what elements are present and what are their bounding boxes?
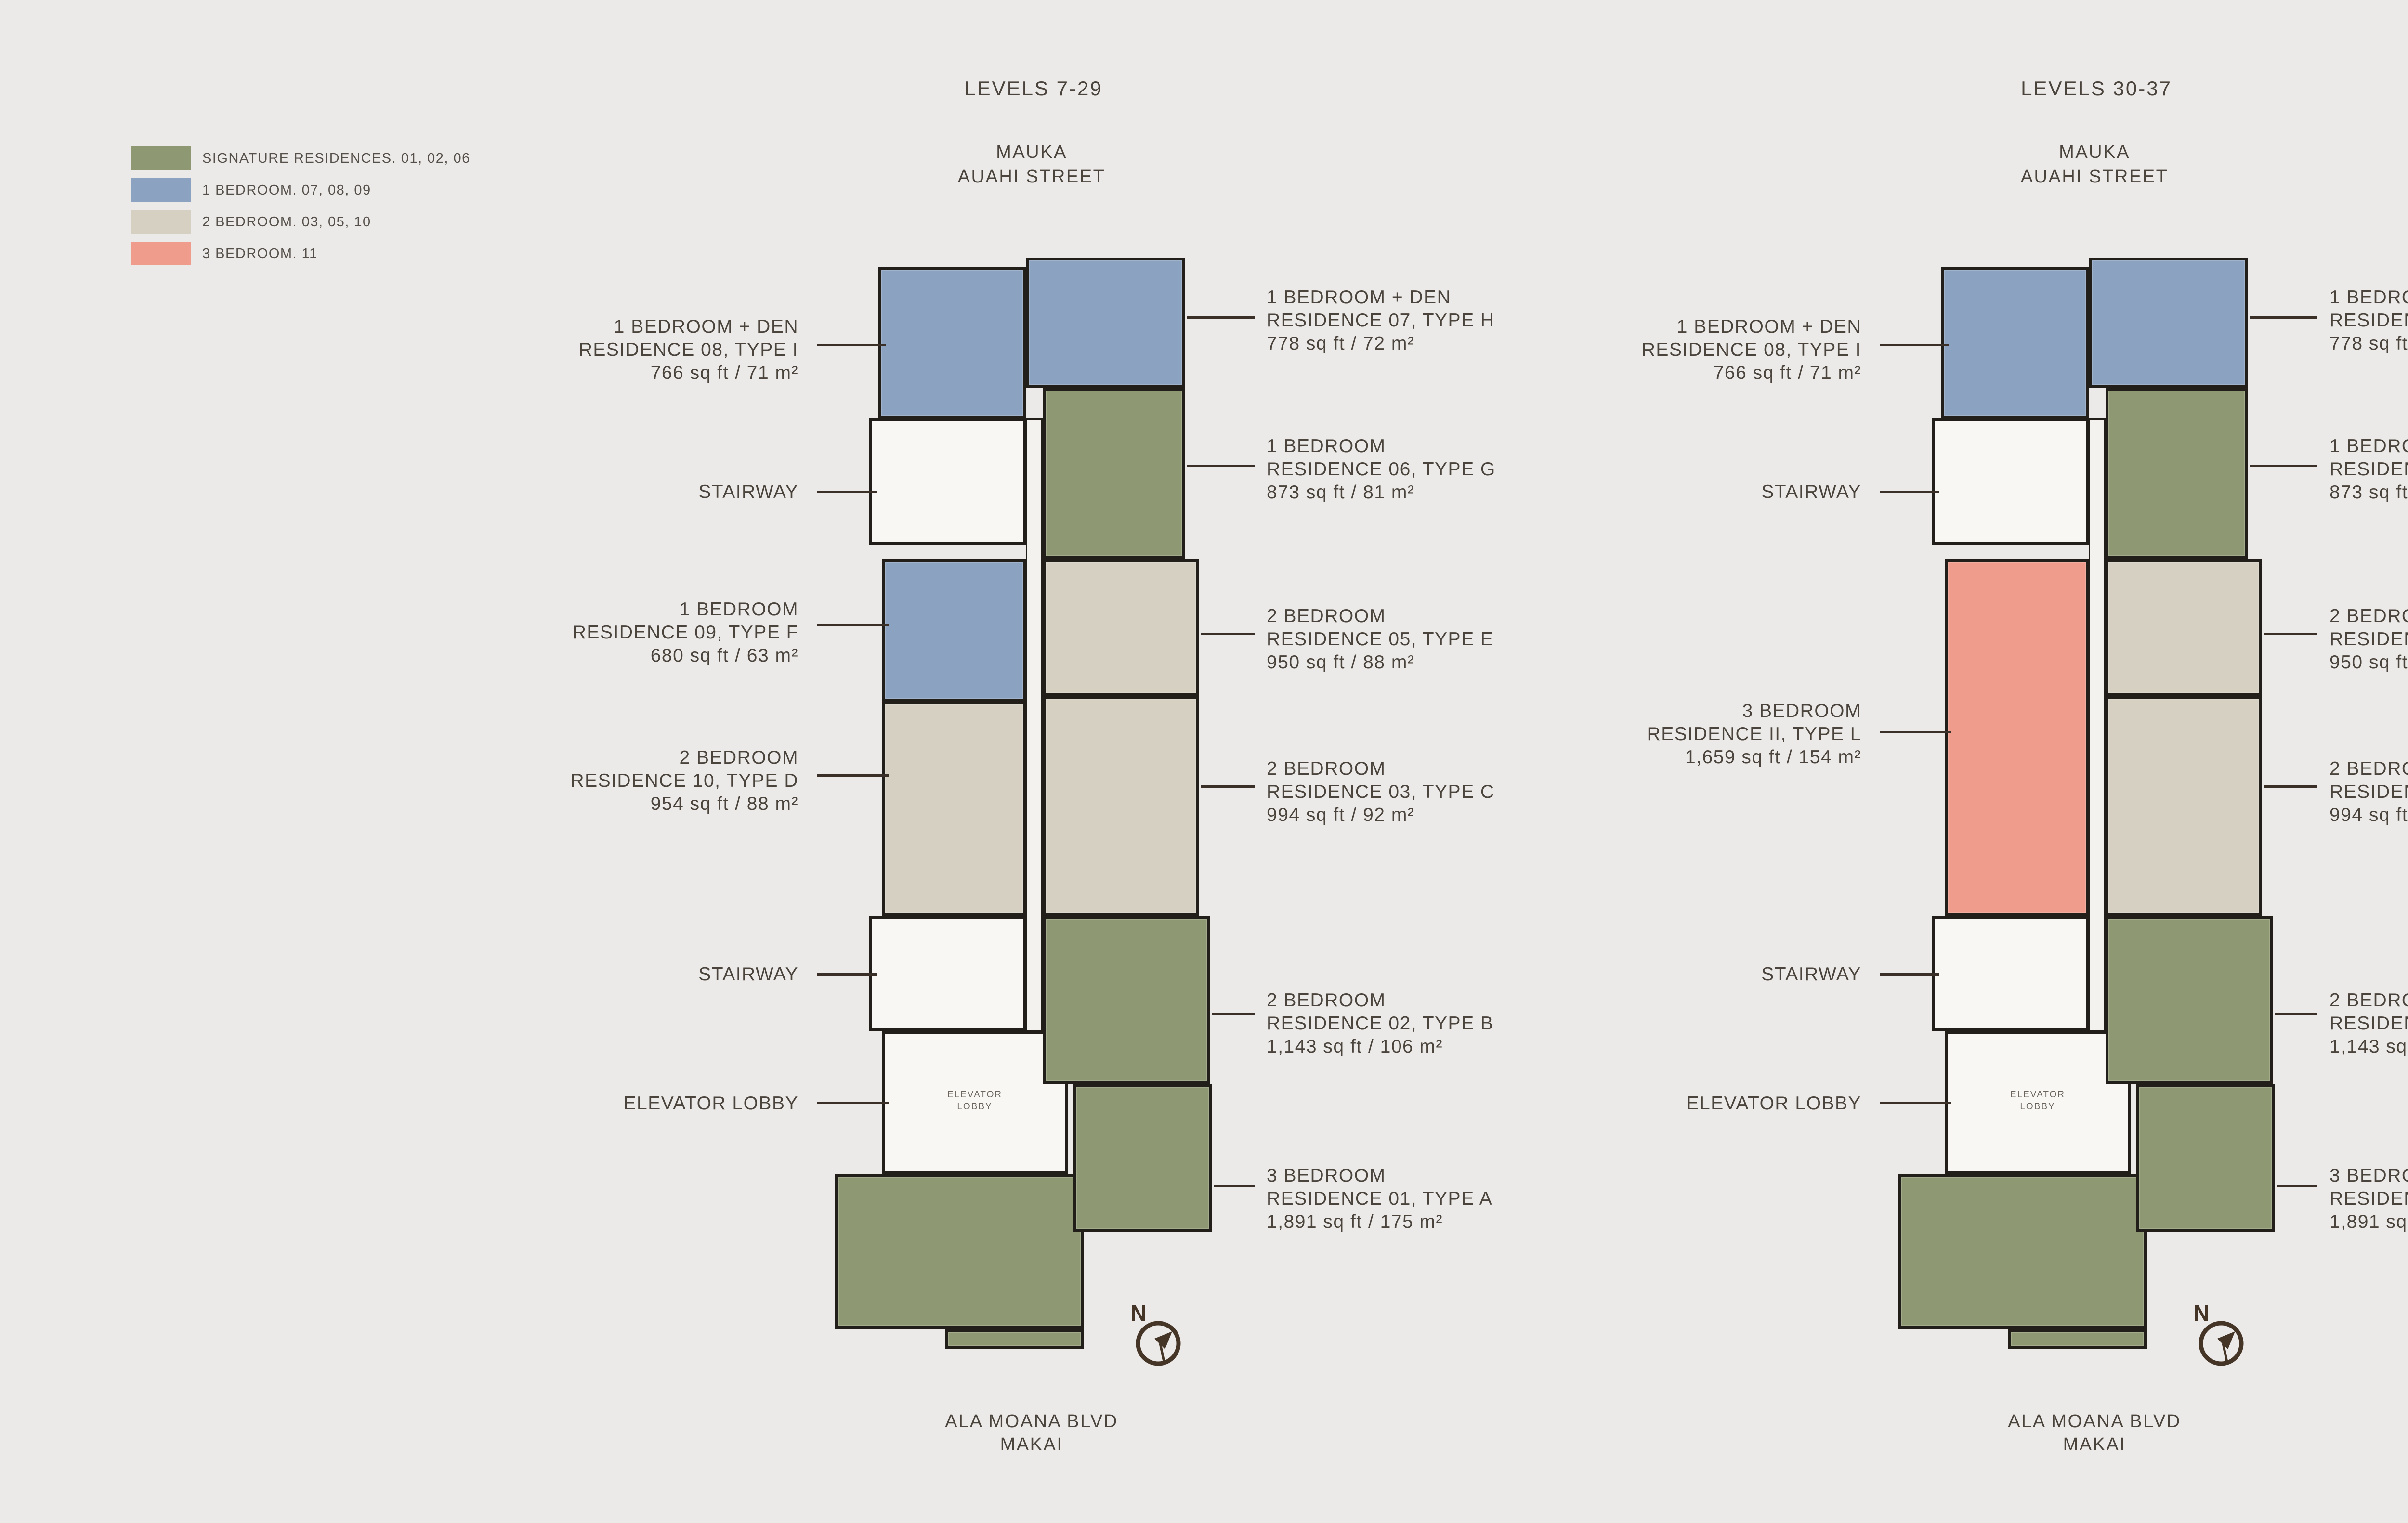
unit-residence-11: [1945, 559, 2089, 916]
label-line: STAIRWAY: [1572, 481, 1861, 504]
label-line: RESIDENCE 03, TYPE C: [2329, 781, 2408, 804]
label-line: 2 BEDROOM: [2329, 605, 2408, 628]
leader-line-residence-09: [817, 624, 889, 626]
unit-stairway-upper: [1932, 418, 2089, 545]
unit-residence-02: [2106, 916, 2273, 1084]
unit-elevator-lobby: ELEVATOR LOBBY: [1945, 1031, 2131, 1174]
unit-residence-01-east: [2136, 1084, 2275, 1232]
leader-line-stairway-lower: [817, 973, 877, 976]
leader-line-residence-03: [2264, 785, 2317, 788]
unit-stairway-lower: [1932, 916, 2089, 1031]
floor-plan-sheet: SIGNATURE RESIDENCES. 01, 02, 061 BEDROO…: [0, 0, 2408, 1523]
leader-line-residence-08: [817, 344, 886, 346]
label-line: 2 BEDROOM: [2329, 757, 2408, 781]
label-line: 1,659 sq ft / 154 m²: [1572, 746, 1861, 769]
label-line: 1 BEDROOM + DEN: [510, 315, 798, 338]
label-residence-08: 1 BEDROOM + DENRESIDENCE 08, TYPE I766 s…: [510, 315, 798, 385]
label-residence-08: 1 BEDROOM + DENRESIDENCE 08, TYPE I766 s…: [1572, 315, 1861, 385]
label-line: ELEVATOR LOBBY: [510, 1092, 798, 1115]
label-line: RESIDENCE 07, TYPE H: [2329, 309, 2408, 332]
unit-elevator-lobby: ELEVATOR LOBBY: [882, 1031, 1068, 1174]
leader-line-residence-06: [2250, 465, 2317, 467]
unit-corridor: [1026, 418, 1043, 1031]
label-stairway-upper: STAIRWAY: [1572, 481, 1861, 504]
unit-residence-01-main: [1898, 1174, 2147, 1329]
label-line: RESIDENCE 10, TYPE D: [510, 769, 798, 793]
label-line: 766 sq ft / 71 m²: [510, 362, 798, 385]
unit-residence-06: [2106, 388, 2248, 559]
label-elevator-lobby: ELEVATOR LOBBY: [1572, 1092, 1861, 1115]
street-label-auahi-street: AUAHI STREET: [1950, 167, 2239, 187]
label-stairway-lower: STAIRWAY: [1572, 963, 1861, 986]
label-residence-07: 1 BEDROOM + DENRESIDENCE 07, TYPE H778 s…: [2329, 286, 2408, 355]
label-line: RESIDENCE 02, TYPE B: [2329, 1012, 2408, 1035]
label-residence-03: 2 BEDROOMRESIDENCE 03, TYPE C994 sq ft /…: [2329, 757, 2408, 827]
label-line: STAIRWAY: [510, 481, 798, 504]
label-line: 1 BEDROOM: [2329, 435, 2408, 458]
unit-residence-09: [882, 559, 1026, 702]
leader-line-elevator-lobby: [817, 1102, 889, 1104]
label-line: STAIRWAY: [1572, 963, 1861, 986]
leader-line-residence-10: [817, 774, 889, 777]
label-line: 1 BEDROOM + DEN: [2329, 286, 2408, 309]
unit-stairway-lower: [869, 916, 1026, 1031]
label-line: RESIDENCE 06, TYPE G: [2329, 458, 2408, 481]
leader-line-residence-01: [2277, 1185, 2317, 1187]
label-line: 1,143 sq ft / 106 m²: [2329, 1035, 2408, 1058]
street-label-makai: MAKAI: [1950, 1434, 2239, 1455]
label-line: 954 sq ft / 88 m²: [510, 793, 798, 816]
leader-line-residence-02: [2275, 1013, 2317, 1015]
label-line: 778 sq ft / 72 m²: [2329, 332, 2408, 355]
unit-residence-03: [2106, 696, 2262, 916]
label-line: 1 BEDROOM: [510, 598, 798, 621]
label-line: 3 BEDROOM: [2329, 1164, 2408, 1187]
label-residence-10: 2 BEDROOMRESIDENCE 10, TYPE D954 sq ft /…: [510, 746, 798, 816]
unit-residence-08: [878, 267, 1026, 418]
street-label-mauka: MAUKA: [1950, 142, 2239, 163]
label-line: STAIRWAY: [510, 963, 798, 986]
unit-corridor: [2089, 418, 2106, 1031]
label-line: ELEVATOR LOBBY: [1572, 1092, 1861, 1115]
label-residence-09: 1 BEDROOMRESIDENCE 09, TYPE F680 sq ft /…: [510, 598, 798, 667]
label-line: RESIDENCE 05, TYPE E: [2329, 628, 2408, 651]
label-residence-06: 1 BEDROOMRESIDENCE 06, TYPE G873 sq ft /…: [2329, 435, 2408, 504]
label-line: RESIDENCE 01, TYPE A: [2329, 1187, 2408, 1211]
unit-stairway-upper: [869, 418, 1026, 545]
leader-line-residence-11: [1880, 731, 1951, 733]
label-line: 2 BEDROOM: [510, 746, 798, 769]
leader-line-residence-08: [1880, 344, 1949, 346]
label-residence-05: 2 BEDROOMRESIDENCE 05, TYPE E950 sq ft /…: [2329, 605, 2408, 674]
unit-inner-label: ELEVATOR LOBBY: [1992, 1089, 2083, 1113]
unit-residence-07: [2089, 258, 2248, 388]
unit-inner-label: ELEVATOR LOBBY: [929, 1089, 1021, 1113]
label-line: RESIDENCE II, TYPE L: [1572, 723, 1861, 746]
leader-line-elevator-lobby: [1880, 1102, 1951, 1104]
label-residence-01: 3 BEDROOMRESIDENCE 01, TYPE A1,891 sq ft…: [2329, 1164, 2408, 1234]
label-line: 950 sq ft / 88 m²: [2329, 651, 2408, 674]
label-residence-02: 2 BEDROOMRESIDENCE 02, TYPE B1,143 sq ft…: [2329, 989, 2408, 1058]
label-stairway-upper: STAIRWAY: [510, 481, 798, 504]
label-line: RESIDENCE 08, TYPE I: [1572, 338, 1861, 362]
plan-title: LEVELS 30-37: [1952, 77, 2241, 100]
label-elevator-lobby: ELEVATOR LOBBY: [510, 1092, 798, 1115]
leader-line-residence-05: [2264, 633, 2317, 635]
unit-residence-01-main: [835, 1174, 1084, 1329]
label-line: RESIDENCE 08, TYPE I: [510, 338, 798, 362]
label-line: 873 sq ft / 81 m²: [2329, 481, 2408, 504]
label-line: 2 BEDROOM: [2329, 989, 2408, 1012]
label-residence-11: 3 BEDROOMRESIDENCE II, TYPE L1,659 sq ft…: [1572, 700, 1861, 769]
unit-residence-05: [2106, 559, 2262, 696]
plan-levels-30-37: LEVELS 30-37 MAUKA AUAHI STREET ELEVATOR…: [1063, 0, 2408, 1523]
label-line: 1 BEDROOM + DEN: [1572, 315, 1861, 338]
leader-line-residence-07: [2250, 316, 2317, 319]
label-line: 1,891 sq ft / 175 m²: [2329, 1211, 2408, 1234]
compass-icon: [2196, 1318, 2246, 1368]
street-label-ala-moana-blvd: ALA MOANA BLVD: [1950, 1411, 2239, 1432]
unit-residence-01-lanai: [2008, 1329, 2147, 1349]
label-line: 3 BEDROOM: [1572, 700, 1861, 723]
unit-residence-10: [882, 702, 1026, 916]
leader-line-stairway-upper: [1880, 491, 1939, 493]
label-line: 994 sq ft / 92 m²: [2329, 804, 2408, 827]
label-line: 680 sq ft / 63 m²: [510, 644, 798, 667]
label-line: RESIDENCE 09, TYPE F: [510, 621, 798, 644]
leader-line-stairway-upper: [817, 491, 877, 493]
label-stairway-lower: STAIRWAY: [510, 963, 798, 986]
label-line: 766 sq ft / 71 m²: [1572, 362, 1861, 385]
leader-line-stairway-lower: [1880, 973, 1939, 976]
unit-residence-08: [1941, 267, 2089, 418]
